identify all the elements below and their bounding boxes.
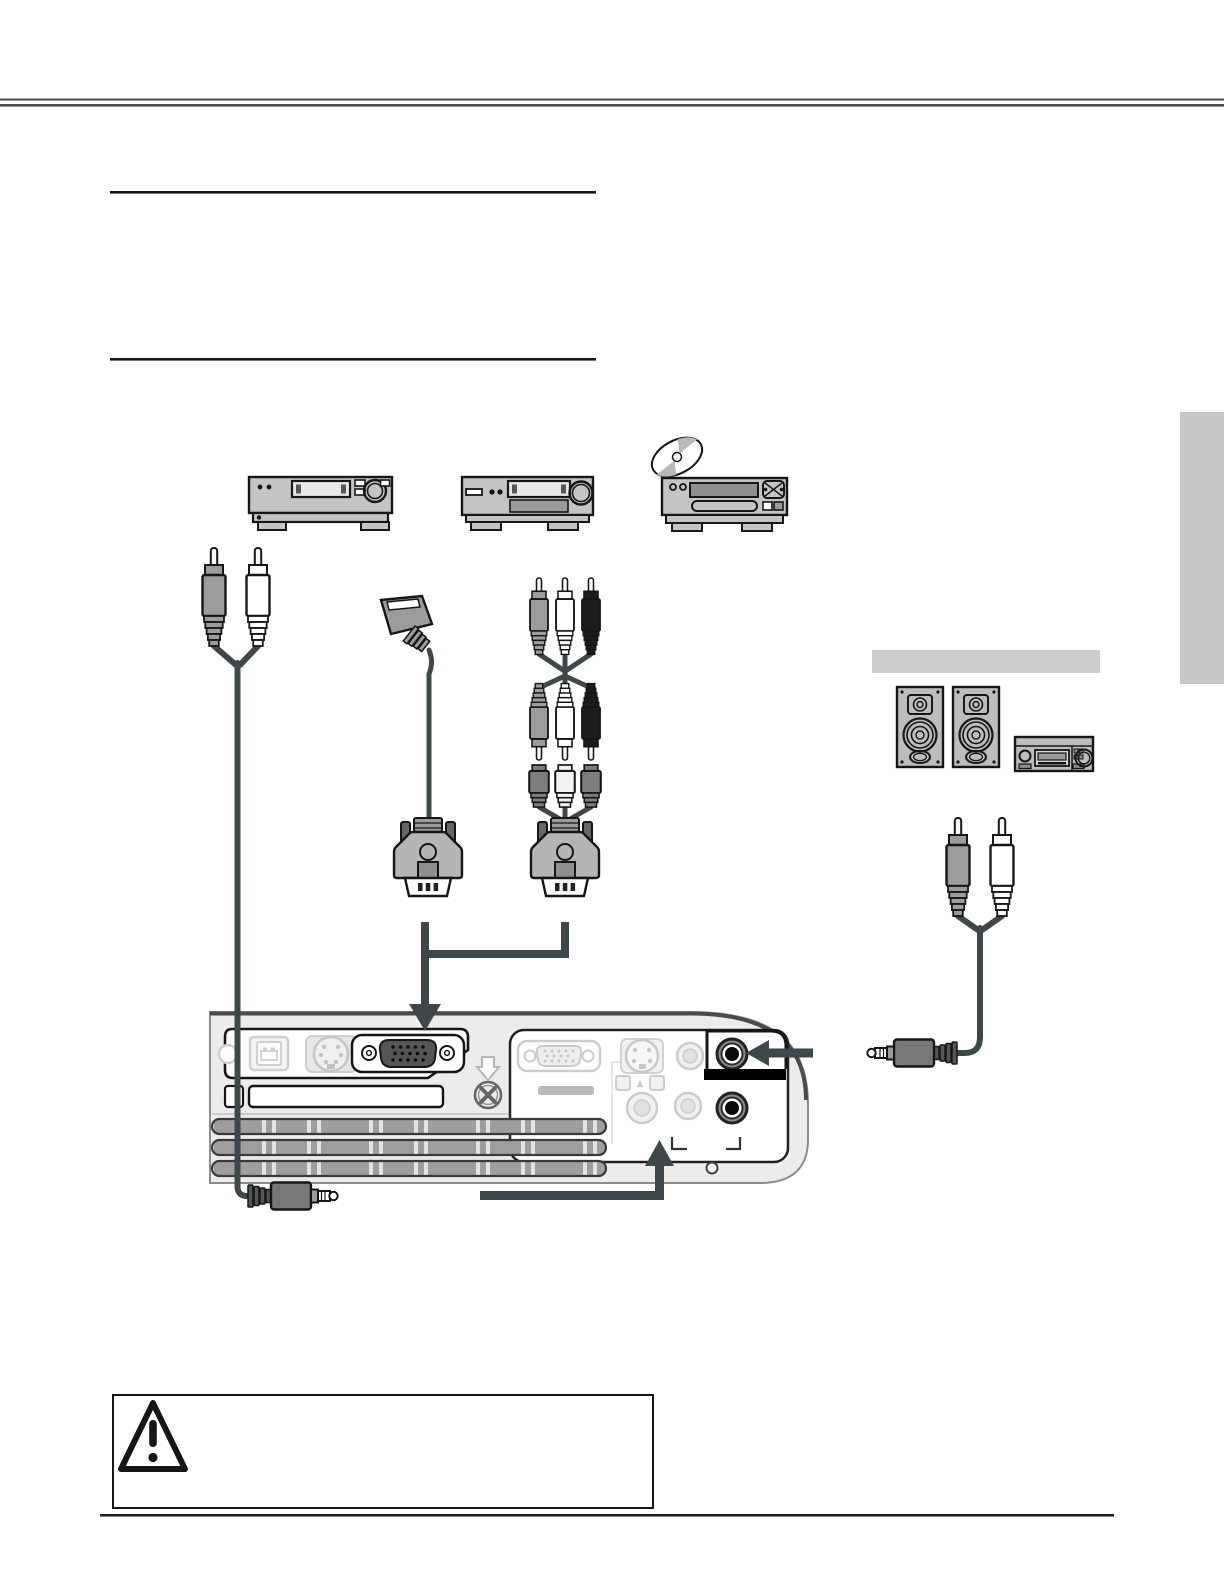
projector-rear-panel xyxy=(210,1012,808,1183)
usb-port-icon xyxy=(250,1037,288,1070)
audio-highlight-bar xyxy=(704,1069,786,1080)
page-header-rules xyxy=(0,99,1224,107)
side-tab xyxy=(1180,412,1224,684)
component-rca-to-vga-cable-icon xyxy=(529,578,601,896)
section-rule-2 xyxy=(110,358,596,361)
audio-minijack-top xyxy=(717,1039,747,1069)
audio-minijack-bottom xyxy=(717,1093,747,1123)
cd-disc-icon xyxy=(645,430,708,484)
amplifier-icon xyxy=(1015,737,1093,771)
manual-page xyxy=(0,0,1224,1570)
left-terminal-box xyxy=(219,1029,468,1107)
rca-to-minijack-audio-cable-icon xyxy=(867,818,1013,1067)
connection-diagram xyxy=(0,0,1224,1570)
vga-port-ghost xyxy=(518,1041,600,1071)
vga-computer-port xyxy=(352,1035,464,1072)
panel-label-bar xyxy=(538,1086,594,1095)
caution-box xyxy=(113,1395,653,1508)
footer-rule xyxy=(100,1514,1114,1517)
panel-screw-hole xyxy=(707,1163,718,1174)
vent-grille xyxy=(212,1119,606,1176)
section-rule-1 xyxy=(110,191,596,194)
scart-to-vga-cable-icon xyxy=(381,596,462,896)
s-video-jack-ghost xyxy=(621,1039,663,1073)
dvd-player-icon xyxy=(645,430,787,531)
video-player-icon xyxy=(462,477,593,530)
din-port-icon xyxy=(306,1036,356,1072)
vcr-icon xyxy=(249,477,392,530)
audio-out-ghost-jack xyxy=(219,1045,237,1063)
external-audio-section xyxy=(867,650,1100,1067)
section-label-bar xyxy=(872,650,1100,673)
screw-icon xyxy=(475,1082,501,1108)
